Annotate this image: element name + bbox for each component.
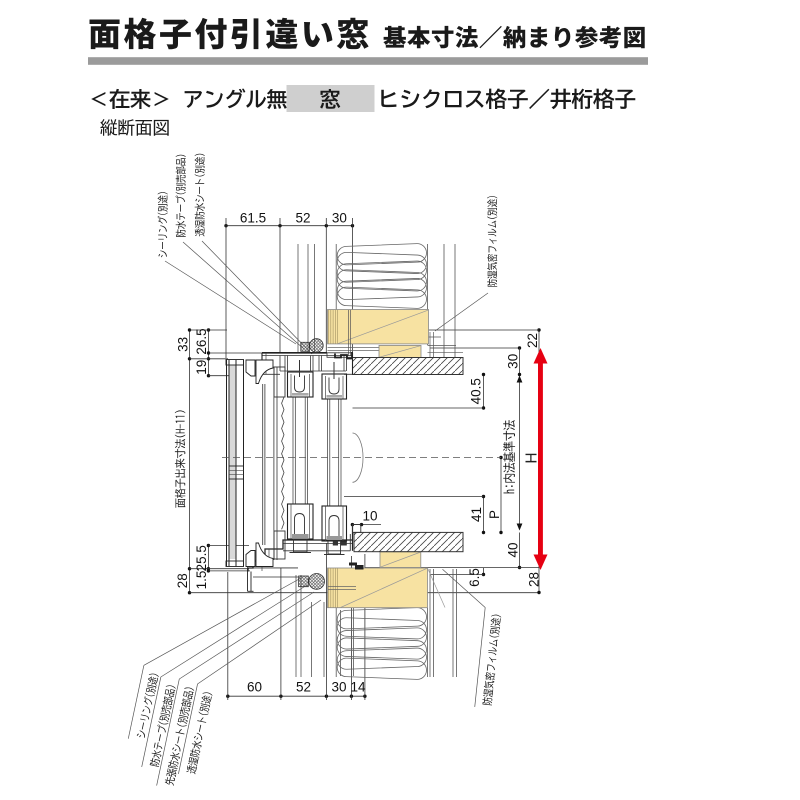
svg-text:60: 60 — [247, 680, 262, 695]
svg-text:1.5: 1.5 — [194, 571, 209, 590]
svg-text:22: 22 — [525, 333, 540, 348]
svg-text:30: 30 — [506, 354, 521, 369]
svg-text:33: 33 — [176, 337, 191, 352]
svg-text:26.5: 26.5 — [194, 328, 209, 354]
svg-text:6.5: 6.5 — [467, 568, 482, 587]
svg-text:H: H — [523, 452, 540, 463]
svg-text:61.5: 61.5 — [240, 211, 266, 226]
svg-text:30: 30 — [331, 680, 346, 695]
svg-text:10: 10 — [362, 509, 377, 524]
svg-text:40: 40 — [506, 542, 521, 557]
svg-text:52: 52 — [296, 680, 311, 695]
svg-text:52: 52 — [295, 211, 310, 226]
svg-text:14: 14 — [350, 680, 366, 695]
svg-text:19: 19 — [194, 360, 209, 375]
svg-text:41: 41 — [469, 507, 484, 522]
svg-text:30: 30 — [332, 211, 347, 226]
svg-text:28: 28 — [175, 573, 190, 588]
svg-text:28: 28 — [527, 572, 542, 587]
svg-text:P: P — [487, 510, 502, 519]
svg-text:40.5: 40.5 — [469, 378, 484, 404]
svg-text:25.5: 25.5 — [194, 545, 209, 571]
